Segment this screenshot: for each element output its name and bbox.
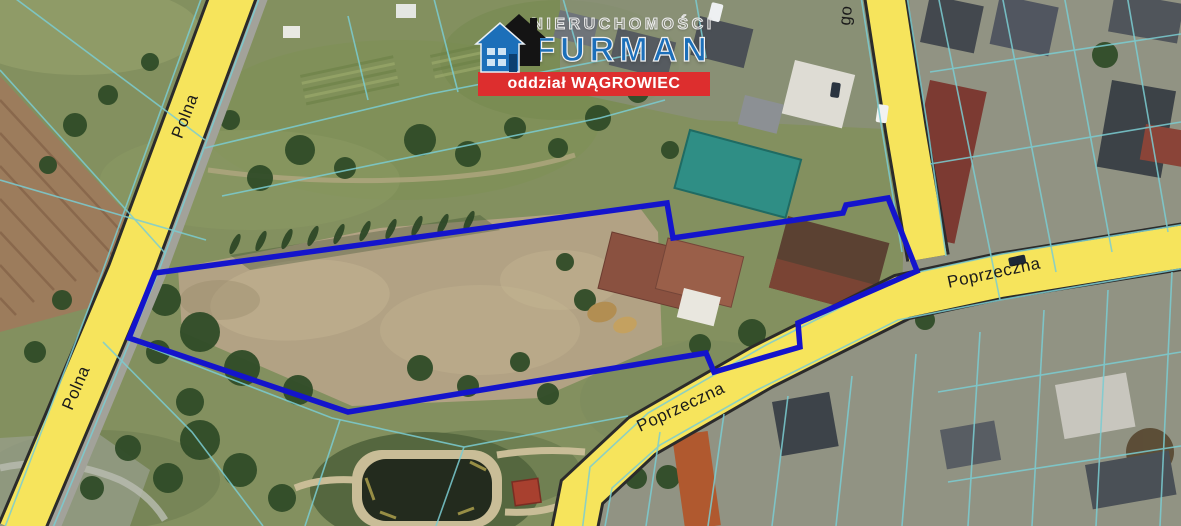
satellite-map[interactable]: Polna Polna Poprzeczna Poprzeczna go NIE…: [0, 0, 1181, 526]
map-canvas: Polna Polna Poprzeczna Poprzeczna go: [0, 0, 1181, 526]
street-label-fragment: go: [835, 5, 856, 27]
gazebo: [512, 478, 541, 505]
